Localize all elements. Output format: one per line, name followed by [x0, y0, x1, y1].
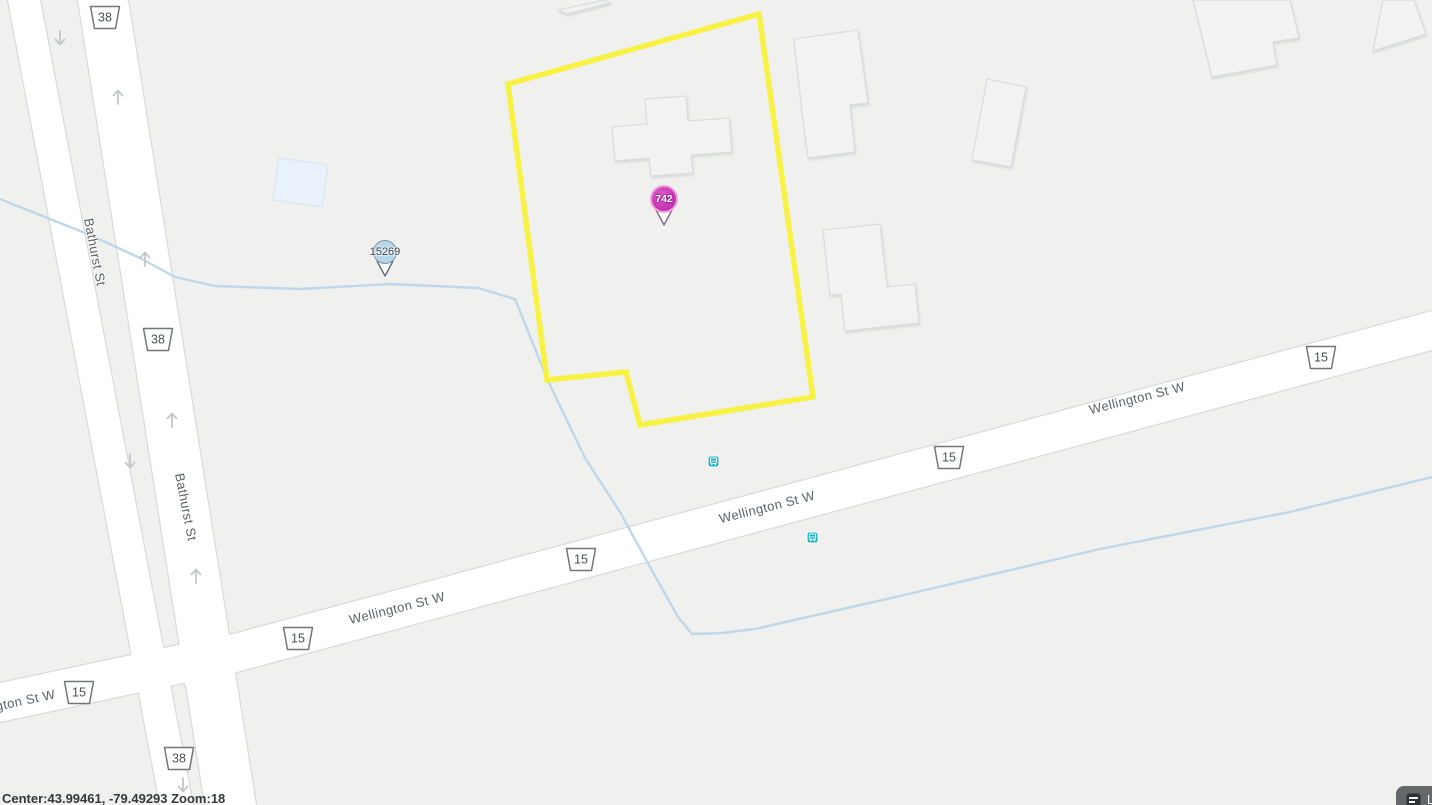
- labels-button[interactable]: Labels: [1396, 786, 1432, 805]
- route-shield-38: 38: [140, 326, 176, 353]
- route-shield-15: 15: [563, 546, 599, 573]
- route-shield-15: 15: [1303, 344, 1339, 371]
- pin-circle: 15269: [373, 240, 397, 264]
- labels-button-label: Labels: [1427, 793, 1432, 805]
- svg-text:38: 38: [151, 333, 165, 347]
- pin-circle: 742: [650, 185, 678, 213]
- pond: [273, 158, 328, 207]
- map-center-status: Center:43.99461, -79.49293 Zoom:18: [2, 791, 225, 805]
- svg-text:15: 15: [574, 553, 588, 567]
- arrow-up-icon: [139, 250, 151, 268]
- route-shield-38: 38: [161, 745, 197, 772]
- arrow-up-icon: [112, 88, 124, 106]
- route-shield-38: 38: [87, 4, 123, 31]
- bus-stop-icon[interactable]: [707, 455, 720, 468]
- route-shield-15: 15: [61, 679, 97, 706]
- map-canvas[interactable]: Bathurst St Bathurst St Wellington St W …: [0, 0, 1432, 805]
- svg-text:38: 38: [98, 11, 112, 25]
- bus-stop-icon[interactable]: [806, 531, 819, 544]
- route-shield-15: 15: [931, 444, 967, 471]
- arrow-down-icon: [124, 452, 136, 470]
- route-shield-15: 15: [280, 625, 316, 652]
- arrow-down-icon: [54, 29, 66, 47]
- pin-label: 15269: [370, 246, 401, 258]
- svg-text:15: 15: [1314, 351, 1328, 365]
- svg-text:38: 38: [172, 752, 186, 766]
- labels-icon: [1406, 793, 1421, 805]
- pin-label: 742: [655, 193, 673, 205]
- arrow-up-icon: [190, 567, 202, 585]
- svg-text:15: 15: [291, 632, 305, 646]
- svg-text:15: 15: [72, 686, 86, 700]
- arrow-up-icon: [166, 411, 178, 429]
- map-base-layer: [0, 0, 1432, 805]
- svg-text:15: 15: [942, 451, 956, 465]
